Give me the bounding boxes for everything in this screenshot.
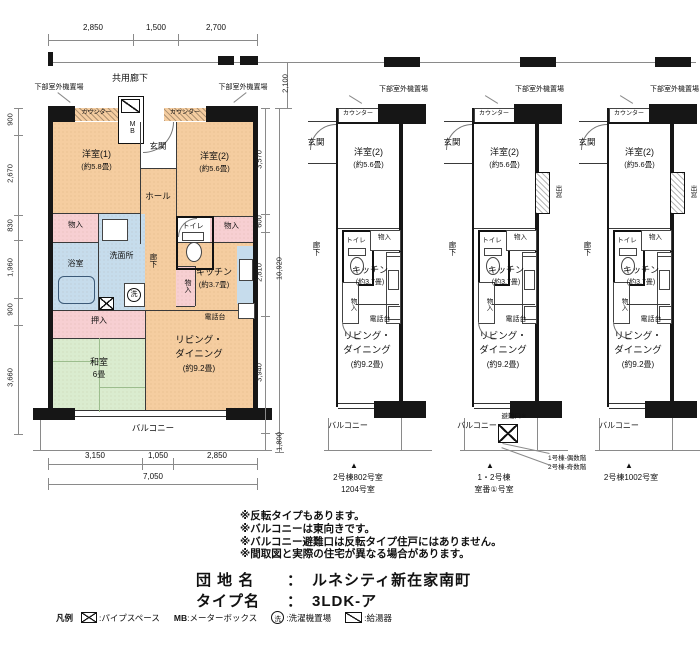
oshiire-label: 押入 [53, 317, 145, 326]
room1-name: 洋室(1) [53, 150, 140, 160]
outdoor-unit-label: 下部室外機置場 [328, 86, 428, 94]
bathtub [58, 276, 95, 304]
line [145, 310, 146, 412]
line [176, 306, 195, 307]
hall-label: ホール [134, 192, 182, 201]
wall [206, 106, 258, 122]
estate-name-row: 団 地 名：ルネシティ新在家南町 [196, 569, 616, 590]
living-name-1: リビング・ [334, 332, 400, 342]
living-name-1: リビング・ [145, 336, 253, 346]
caption-line-2: 室番①号室 [444, 486, 544, 495]
dim-left-2: 2,670 [6, 157, 15, 191]
type-name-row: タイプ名：3LDK-ア [196, 590, 616, 611]
dim-right-2: 600 [255, 202, 264, 242]
leader-line [620, 95, 633, 104]
dim-tick [283, 108, 292, 109]
leader-line [233, 92, 246, 103]
living-size: (約9.2畳) [605, 361, 671, 370]
leader-line [349, 95, 362, 104]
note-line-3: ※バルコニー避難口は反転タイプ住戸にはありません。 [240, 536, 670, 549]
dim-tick [261, 108, 270, 109]
room-name: 洋室(2) [338, 148, 399, 158]
caption-line-1: 2号棟1002号室 [581, 474, 681, 483]
legend-mb-text: :メーターボックス [187, 612, 257, 624]
line [308, 121, 336, 122]
leader-line [485, 95, 498, 104]
wall [33, 408, 75, 420]
dim-line [48, 484, 258, 485]
wall [607, 122, 671, 124]
closet-left-label: 物入 [53, 221, 98, 229]
counter-label: カウンター [471, 111, 517, 118]
dim-tick [48, 478, 49, 490]
estate-name-value: ルネシティ新在家南町 [312, 572, 471, 589]
hall-corridor-area [140, 168, 176, 310]
dim-top-3: 2,700 [180, 24, 252, 33]
dim-bottom-total: 7,050 [118, 473, 188, 482]
dim-balcony-depth: 1,800 [275, 422, 284, 462]
dim-tick [178, 34, 179, 46]
floorplan-canvas: 2,850 1,500 2,700 共用廊下 2,100 MB [0, 0, 700, 650]
room-size: (約5.6畳) [338, 161, 399, 169]
line [98, 213, 99, 310]
mb-label: MB [124, 115, 136, 141]
washitsu-name: 和室 [53, 358, 145, 368]
washroom-sink [102, 219, 128, 241]
kitchen-size: (約3.7畳) [340, 279, 400, 287]
wall [472, 122, 536, 124]
wall [384, 57, 420, 67]
note-line-2: ※バルコニーは東向きです。 [240, 523, 670, 536]
phone-stand-label: 電話台 [192, 314, 238, 322]
wash-symbol: 洗 [271, 611, 284, 624]
corridor-label: 廊下 [579, 234, 591, 262]
balcony-line [595, 450, 700, 451]
outdoor-unit-label-left: 下部室外機置場 [12, 84, 106, 92]
living-size: (約9.2畳) [470, 361, 536, 370]
kitchen-size: (約3.7畳) [611, 279, 671, 287]
counter-label-right: カウンター [164, 110, 206, 117]
dim-left-1: 900 [6, 103, 15, 137]
caption-line-1: 1・2号棟 [444, 474, 544, 483]
dim-tick [261, 316, 270, 317]
balcony-edge [672, 418, 673, 450]
legend-pipe-text: :パイプスペース [99, 612, 160, 624]
toilet-tank [348, 248, 366, 256]
toilet-label: トイレ [613, 237, 641, 244]
line [53, 242, 98, 243]
toilet-tank [484, 248, 502, 256]
water-heater-icon [121, 99, 140, 113]
balcony-edge [401, 418, 402, 450]
balcony-line [324, 450, 432, 451]
wall [520, 57, 556, 67]
separator: ： [278, 569, 312, 590]
line [53, 310, 253, 311]
genkan-label: 玄関 [569, 138, 605, 147]
line [444, 163, 472, 164]
room-name: 洋室(2) [609, 148, 670, 158]
dim-line [48, 464, 258, 465]
line [492, 304, 535, 305]
dim-right-4: 3,940 [255, 353, 264, 393]
caption-marker: ▲ [480, 462, 500, 471]
corridor-label: 廊下 [444, 234, 456, 262]
wall [655, 57, 691, 67]
bay-window-label: 出窓 [685, 178, 695, 204]
closet-small-label: 物入 [344, 290, 355, 318]
dim-right-total: 10,920 [275, 249, 284, 289]
dim-top-1: 2,850 [60, 24, 126, 33]
dim-tick [257, 34, 258, 46]
dim-tick [14, 215, 23, 216]
line [140, 168, 176, 169]
dim-tick [257, 458, 258, 470]
balcony-label: バルコニー [587, 422, 651, 431]
type-name-value: 3LDK-ア [312, 593, 377, 610]
line [609, 228, 670, 229]
balcony-edge [537, 418, 538, 450]
bay-window [670, 172, 685, 214]
phone-stand-label: 電話台 [360, 316, 400, 324]
wall [514, 104, 562, 124]
legend-row: 凡例 :パイプスペース MB :メーターボックス 洗 :洗濯機置場 :給湯器 [56, 611, 392, 624]
legend-heater-text: :給湯器 [364, 612, 392, 624]
living-name-2: ダイニング [605, 346, 671, 356]
living-name-2: ダイニング [145, 350, 253, 360]
counter-label: カウンター [606, 111, 652, 118]
wall [240, 56, 258, 65]
bay-window-label: 出窓 [550, 178, 560, 204]
wall [218, 56, 234, 65]
line [474, 228, 535, 229]
dim-right-1: 3,570 [255, 140, 264, 180]
closet-right-label: 物入 [210, 222, 253, 230]
corridor-label-plan1: 廊下 [145, 246, 157, 274]
closet-label: 物入 [506, 234, 535, 241]
balcony-label: バルコニー [316, 422, 380, 431]
phone-stand-label: 電話台 [631, 316, 671, 324]
pipe-space-icon [81, 612, 97, 623]
line [444, 121, 472, 122]
balcony-label: バルコニー [108, 424, 198, 433]
dim-right-3: 2,810 [255, 253, 264, 293]
dim-tick [14, 135, 23, 136]
living-name-1: リビング・ [470, 332, 536, 342]
living-name-2: ダイニング [470, 346, 536, 356]
legend-wash-text: :洗濯機置場 [286, 612, 331, 624]
caption-marker: ▲ [619, 462, 639, 471]
genkan-label: 玄関 [298, 138, 334, 147]
bath-label: 浴室 [53, 260, 98, 269]
dim-left-3: 830 [6, 209, 15, 243]
dim-tick [261, 433, 270, 434]
living-size: (約9.2畳) [334, 361, 400, 370]
separator: ： [278, 590, 312, 611]
corridor-label: 廊下 [308, 234, 320, 262]
toilet-label: トイレ [176, 223, 210, 231]
room2-name: 洋室(2) [176, 152, 253, 162]
washitsu-size: 6畳 [53, 371, 145, 380]
living-name-2: ダイニング [334, 346, 400, 356]
room-living [145, 310, 253, 412]
legend-label: 凡例 [56, 612, 73, 624]
kitchen-size: (約3.7畳) [178, 281, 250, 289]
window [609, 403, 647, 409]
outdoor-unit-label: 下部室外機置場 [599, 86, 699, 94]
line [579, 121, 607, 122]
dim-left-6: 3,660 [6, 361, 15, 395]
line [140, 122, 141, 244]
dim-tick [14, 434, 23, 435]
kitchen-name: キッチン [476, 266, 536, 276]
closet-small-label: 物入 [480, 290, 491, 318]
note-line-1: ※反転タイプもあります。 [240, 510, 670, 523]
dim-bottom-3: 2,850 [181, 452, 253, 461]
legend-mb-symbol: MB [174, 613, 187, 623]
window [474, 403, 512, 409]
evacuation-hatch [498, 424, 518, 443]
genkan-label: 玄関 [434, 138, 470, 147]
dim-top-2: 1,500 [134, 24, 178, 33]
leader-line [57, 92, 70, 103]
caption-line-1: 2号棟802号室 [308, 474, 408, 483]
wall [649, 104, 697, 124]
closet-label: 物入 [370, 234, 399, 241]
note-line-4: ※間取図と実際の住宅が異なる場合があります。 [240, 548, 670, 561]
kitchen-name: キッチン [611, 266, 671, 276]
dim-tick [257, 478, 258, 490]
water-heater-icon [345, 612, 362, 623]
outdoor-unit-label: 下部室外機置場 [464, 86, 564, 94]
estate-name-label: 団 地 名 [196, 569, 278, 590]
dim-line [18, 108, 19, 434]
dim-line [48, 40, 258, 41]
phone-stand-label: 電話台 [496, 316, 536, 324]
outdoor-unit-label-right: 下部室外機置場 [196, 84, 290, 92]
dim-tick [14, 298, 23, 299]
wall [378, 104, 426, 124]
toilet-label: トイレ [342, 237, 370, 244]
room-size: (約5.6畳) [609, 161, 670, 169]
kitchen-size: (約3.7畳) [476, 279, 536, 287]
dim-bottom-2: 1,050 [139, 452, 177, 461]
room1-size: (約5.8畳) [53, 163, 140, 171]
dim-tick [48, 458, 49, 470]
line [627, 304, 670, 305]
living-size: (約9.2畳) [145, 365, 253, 374]
living-name-1: リビング・ [605, 332, 671, 342]
closet-label: 物入 [641, 234, 670, 241]
room-name: 洋室(2) [474, 148, 535, 158]
caption-marker: ▲ [344, 462, 364, 471]
line [338, 228, 399, 229]
counter-label: カウンター [335, 111, 381, 118]
dim-left-5: 900 [6, 293, 15, 327]
dim-bottom-1: 3,150 [60, 452, 130, 461]
toilet-label: トイレ [478, 237, 506, 244]
wall [336, 122, 400, 124]
dim-tick [14, 108, 23, 109]
washroom-label: 洗面所 [98, 252, 145, 261]
dim-line [265, 108, 266, 433]
genkan-label: 玄関 [138, 142, 178, 151]
dim-tick [275, 108, 284, 109]
room2-size: (約5.6畳) [176, 165, 253, 173]
window [338, 403, 376, 409]
line [53, 213, 140, 214]
room-size: (約5.6畳) [474, 161, 535, 169]
dim-tick [14, 325, 23, 326]
wash-symbol: 洗 [127, 288, 141, 302]
phone-stand-shelf [238, 303, 255, 319]
toilet-tank [619, 248, 637, 256]
dim-tick [14, 240, 23, 241]
caption-line-2: 1204号室 [308, 486, 408, 495]
window [75, 410, 226, 417]
kitchen-name: キッチン [178, 268, 250, 278]
counter-label-left: カウンター [75, 110, 118, 117]
line [308, 163, 336, 164]
bay-window [535, 172, 550, 214]
dim-tick [48, 34, 49, 46]
kitchen-name: キッチン [340, 266, 400, 276]
dim-left-4: 1,960 [6, 251, 15, 285]
notes-block: ※反転タイプもあります。 ※バルコニーは東向きです。 ※バルコニー避難口は反転タ… [240, 510, 670, 561]
corridor-label: 共用廊下 [92, 74, 168, 84]
toilet-bowl [186, 242, 202, 262]
wall [48, 52, 53, 66]
closet-small-label: 物入 [615, 290, 626, 318]
line [356, 304, 399, 305]
type-name-label: タイプ名 [196, 590, 278, 611]
pipe-space-icon [99, 297, 114, 310]
line [579, 163, 607, 164]
hatch-label: 避難口※ [492, 413, 536, 420]
tatami-line [99, 387, 145, 388]
wall [645, 401, 697, 418]
wall [374, 401, 426, 418]
balcony-edge [40, 420, 41, 450]
dim-tick [133, 34, 134, 46]
